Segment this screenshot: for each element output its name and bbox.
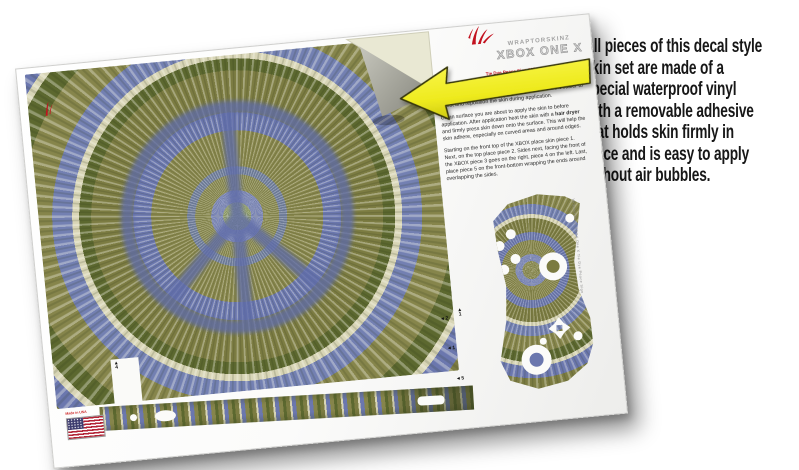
- button-cutout: [540, 338, 547, 345]
- button-cutout: [499, 264, 510, 275]
- piece-number: 4: [115, 365, 118, 369]
- flag-canton: [67, 418, 84, 430]
- piece-label-1: ◄ 1: [447, 345, 456, 351]
- circle-cutout: [130, 414, 137, 421]
- button-cutout: [496, 299, 507, 310]
- product-image-canvas: ▲ 4: [0, 0, 799, 470]
- product-annotation-text: All pieces of this decal styleskin set a…: [584, 36, 799, 187]
- yellow-callout-arrow-icon: [392, 58, 597, 120]
- die-cut-notch: ▲ 4: [110, 357, 142, 407]
- button-cutout: [510, 254, 521, 265]
- piece-number: 1: [452, 345, 455, 351]
- annotation-line: without air bubbles.: [584, 165, 799, 187]
- piece-number: 2: [445, 315, 448, 321]
- piece-label-4: ▲ 4: [114, 361, 120, 370]
- arrow-left-icon: ◄: [447, 345, 452, 351]
- button-cutout: [573, 331, 583, 341]
- controller-cutouts: [471, 189, 605, 395]
- instruction-paragraph: Starting on the front top of the XBOX pl…: [444, 134, 592, 183]
- dpad-cutout: [562, 321, 571, 334]
- dpad-cutout: [548, 322, 557, 335]
- controller-skin-piece: [471, 189, 605, 395]
- button-cutout: [505, 229, 516, 240]
- made-in-usa-label: Made in USA: [65, 410, 87, 416]
- piece-label-5: ◄ 5: [456, 375, 465, 381]
- oval-cutout: [155, 410, 177, 422]
- piece-number: 1: [459, 312, 462, 316]
- annotation-line: with a removable adhesive: [584, 101, 799, 123]
- annotation-line: that holds skin firmly in: [584, 122, 799, 144]
- rect-cutout: [417, 395, 444, 406]
- annotation-line: place and is easy to apply: [584, 144, 799, 166]
- button-cutout: [494, 241, 505, 252]
- piece-number: 5: [461, 375, 464, 381]
- annotation-line: skin set are made of a: [584, 58, 799, 80]
- piece-label-2: ◄ 2: [440, 315, 449, 321]
- us-flag-icon: [66, 415, 106, 441]
- mini-claw-mark-icon: [41, 100, 54, 117]
- annotation-line: special waterproof vinyl: [584, 79, 799, 101]
- piece-label-1-top: ▲ 1: [457, 308, 463, 317]
